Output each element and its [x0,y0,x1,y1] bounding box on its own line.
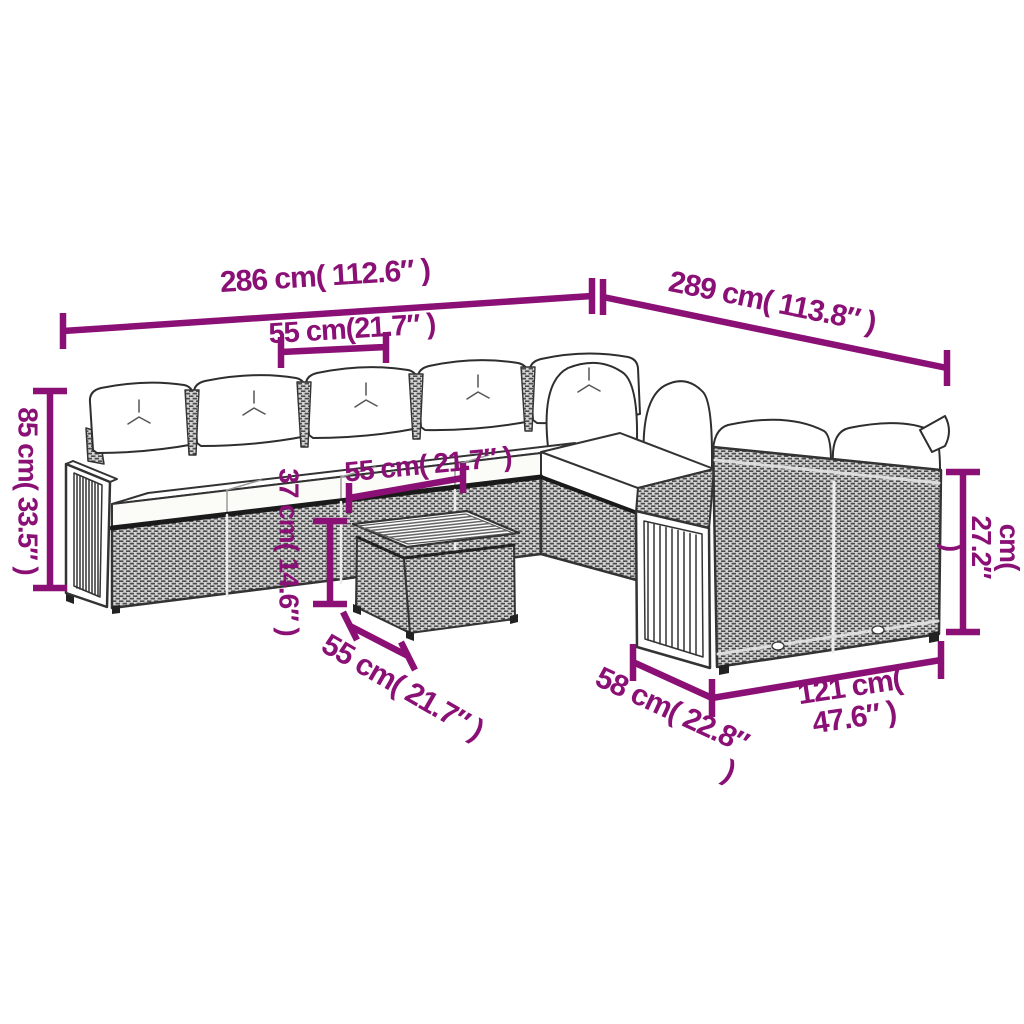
coffee-table [353,511,519,641]
dim-289-line [603,279,947,386]
dim-85-line [33,391,67,588]
left-armrest-wood-panel [66,461,117,607]
right-section-back-panel [713,447,941,675]
product-dimension-diagram: 286 cm( 112.6″ ) 289 cm( 113.8″ ) 55 cm(… [0,0,1024,1024]
dim-55-top-line [281,332,386,368]
right-armrest-wood-panel [636,511,710,668]
sofa-illustration [66,353,949,675]
dim-286-line [63,278,592,349]
dim-69-line [946,472,980,632]
scene-svg [0,0,1024,1024]
